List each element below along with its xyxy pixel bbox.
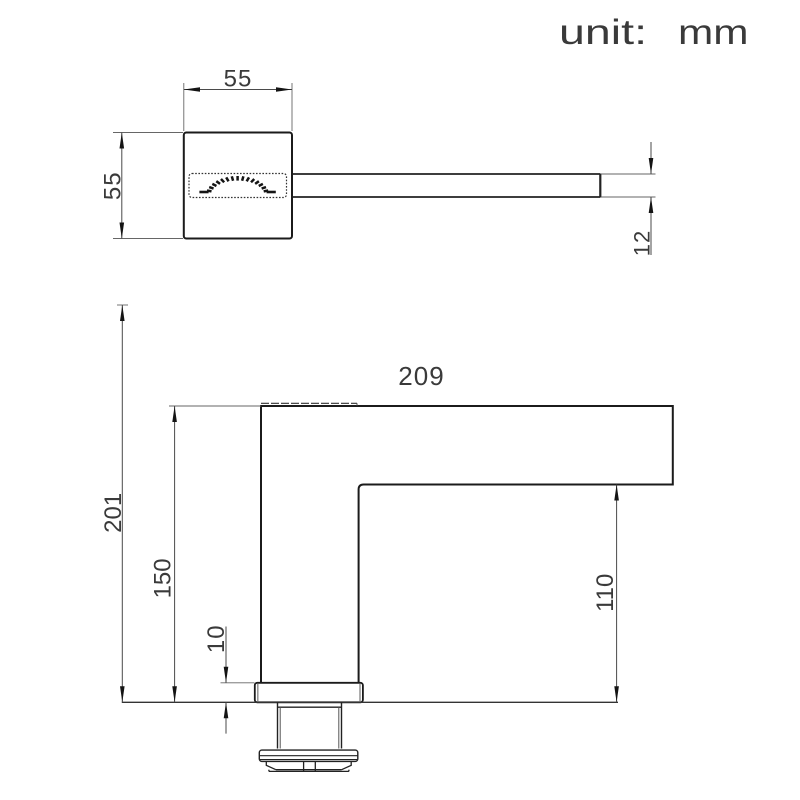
svg-text:55: 55	[224, 65, 253, 92]
svg-text:201: 201	[100, 493, 127, 533]
svg-text:mm: mm	[678, 13, 749, 52]
svg-text:110: 110	[592, 574, 619, 612]
svg-text:55: 55	[99, 171, 126, 200]
svg-text:12: 12	[629, 230, 654, 256]
svg-text:unit:: unit:	[559, 13, 647, 52]
svg-text:209: 209	[398, 361, 444, 391]
svg-text:10: 10	[203, 624, 230, 653]
svg-text:150: 150	[149, 558, 176, 598]
